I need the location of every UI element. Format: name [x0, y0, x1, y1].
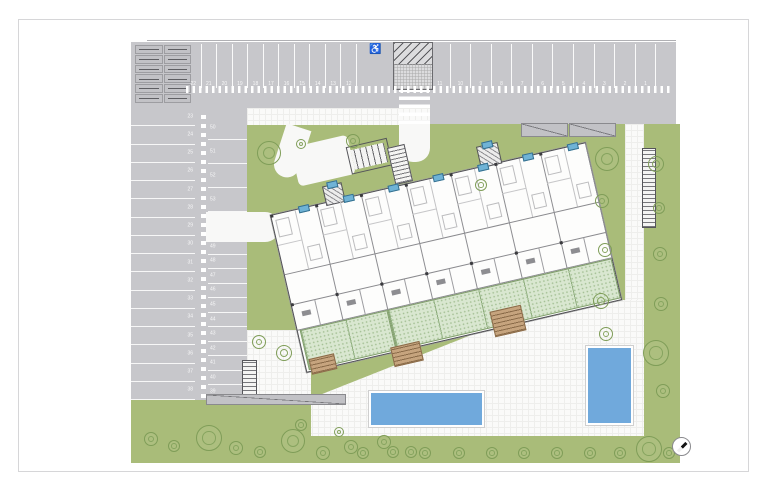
- footpath-west-link: [206, 212, 280, 242]
- north-arrow-icon: [672, 437, 691, 456]
- parking-stall: 22: [186, 44, 202, 88]
- entry-door-marker: [343, 194, 355, 203]
- entry-door-marker: [298, 204, 310, 213]
- parking-stall: 17: [264, 44, 280, 88]
- parking-stall: 31: [131, 254, 195, 272]
- parking-stall: 11: [430, 44, 451, 88]
- parking-stall: 9: [471, 44, 492, 88]
- parking-stall: 2: [615, 44, 636, 88]
- storage-cell: [164, 94, 192, 103]
- parking-stall: 32: [131, 272, 195, 290]
- storage-cell: [135, 94, 163, 103]
- parking-stall: 27: [131, 181, 195, 199]
- parking-stall: 29: [131, 218, 195, 236]
- parking-stall: 5: [553, 44, 574, 88]
- parking-stall: 12: [341, 44, 356, 88]
- parking-stall: 51: [208, 140, 247, 164]
- parking-row-top-left: 2221201918171615141312: [186, 44, 356, 88]
- storage-cell: [135, 55, 163, 64]
- parking-stall: 26: [131, 163, 195, 181]
- parking-stall: [656, 44, 676, 88]
- parking-column-mid-upper: 50515253: [208, 116, 247, 212]
- pool-main: [369, 391, 484, 427]
- crosswalk: [399, 90, 430, 124]
- parking-stall: 3: [595, 44, 616, 88]
- parking-stall: 4: [574, 44, 595, 88]
- parking-stall: 47: [208, 269, 247, 284]
- parking-stall: 13: [326, 44, 342, 88]
- entry-door-marker: [477, 163, 489, 172]
- parking-stall: 25: [131, 145, 195, 163]
- parking-stall: 23: [131, 108, 195, 126]
- pergola-west: [521, 123, 568, 137]
- parking-stall: 6: [533, 44, 554, 88]
- parking-stall: 45: [208, 298, 247, 313]
- parking-stall: 46: [208, 284, 247, 299]
- accessible-parking-icon: ♿: [369, 44, 381, 55]
- parking-stall: 18: [248, 44, 264, 88]
- parking-stall: 38: [131, 382, 195, 400]
- parking-stall: 37: [131, 364, 195, 382]
- parking-stall: 52: [208, 164, 247, 188]
- entry-door-marker: [387, 183, 399, 192]
- accessible-parking-stall: ♿: [356, 44, 395, 88]
- parking-stall: 48: [208, 255, 247, 270]
- pergola-east: [569, 123, 616, 137]
- parking-stall: 20: [217, 44, 233, 88]
- parking-stall: 42: [208, 342, 247, 357]
- storage-cell: [135, 65, 163, 74]
- entry-door-marker: [522, 152, 534, 161]
- parking-stall: 36: [131, 345, 195, 363]
- ramp-hatch: [394, 43, 432, 65]
- aisle-centerline: [201, 114, 206, 398]
- parking-stall: 21: [202, 44, 218, 88]
- parking-stall: 7: [512, 44, 533, 88]
- compass-needle: [676, 441, 686, 451]
- parking-stall: 8: [492, 44, 513, 88]
- parking-stall: 1: [636, 44, 657, 88]
- storage-cell: [135, 84, 163, 93]
- parking-stall: 43: [208, 327, 247, 342]
- parking-stall: 30: [131, 236, 195, 254]
- entry-door-marker: [432, 173, 444, 182]
- parking-stall: 53: [208, 188, 247, 212]
- ramp-south: [206, 394, 346, 405]
- pool-secondary: [586, 346, 633, 425]
- parking-stall: 24: [131, 126, 195, 144]
- lawn-south-west: [131, 400, 311, 463]
- parking-stall: 16: [279, 44, 295, 88]
- parking-stall: 10: [451, 44, 472, 88]
- east-steps: [642, 148, 656, 228]
- boundary-wall-line: [147, 40, 676, 41]
- parking-stall: 35: [131, 327, 195, 345]
- access-road: [430, 108, 676, 124]
- parking-stall: 49: [208, 240, 247, 255]
- lawn-south-band: [311, 436, 644, 463]
- parking-stall: 14: [310, 44, 326, 88]
- parking-stall: 34: [131, 309, 195, 327]
- parking-stall: 15: [295, 44, 311, 88]
- storage-units: [135, 45, 191, 103]
- site-plan-canvas: 2221201918171615141312 ♿ 1110987654321 2…: [0, 0, 768, 491]
- entrance-ramp: [393, 42, 433, 90]
- parking-stall: 50: [208, 116, 247, 140]
- parking-stall: 33: [131, 291, 195, 309]
- parking-row-top-right: 1110987654321: [430, 44, 676, 88]
- entry-door-marker: [567, 142, 579, 151]
- storage-cell: [135, 45, 163, 54]
- storage-cell: [135, 74, 163, 83]
- parking-stall: 19: [233, 44, 249, 88]
- parking-stall: 44: [208, 313, 247, 328]
- parking-stall: 28: [131, 199, 195, 217]
- parking-column-west: 23242526272829303132333435363738: [131, 108, 195, 400]
